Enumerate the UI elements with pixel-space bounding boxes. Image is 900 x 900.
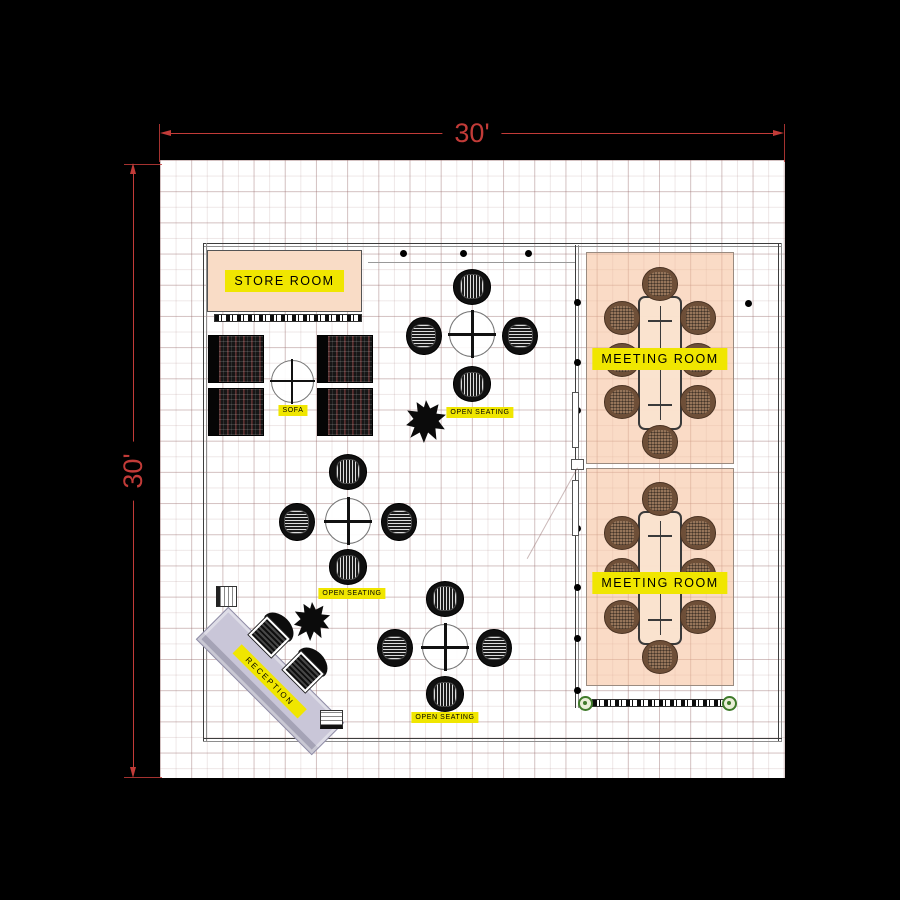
chair-icon	[329, 549, 367, 585]
chair-icon	[453, 366, 491, 402]
credenza-shelf	[592, 699, 728, 707]
sofa-label: SOFA	[278, 405, 307, 416]
plant-icon	[405, 398, 447, 444]
chair-icon	[329, 454, 367, 490]
sliding-door	[572, 392, 579, 448]
column-dot	[574, 299, 581, 306]
round-table-icon	[325, 498, 371, 544]
sliding-door	[572, 480, 579, 536]
meeting-room-label: MEETING ROOM	[592, 572, 727, 594]
chair-icon	[604, 516, 640, 550]
column-dot	[574, 687, 581, 694]
table-detail	[648, 404, 672, 406]
coffee-table-icon	[271, 360, 314, 403]
chair-icon	[642, 482, 678, 516]
chair-icon	[279, 503, 315, 541]
column-dot	[574, 584, 581, 591]
store-room: STORE ROOM	[207, 250, 362, 312]
chair-icon	[476, 629, 512, 667]
column-dot	[460, 250, 467, 257]
chair-icon	[642, 425, 678, 459]
extension-line	[124, 777, 162, 778]
table-detail	[648, 535, 672, 537]
chair-icon	[642, 640, 678, 674]
sofa-icon	[209, 336, 263, 382]
table-detail	[648, 619, 672, 621]
round-table-icon	[422, 624, 468, 670]
glass-partition-line	[368, 262, 575, 263]
printer-icon	[320, 710, 343, 729]
chair-icon	[426, 676, 464, 712]
chair-icon	[453, 269, 491, 305]
arrow-left-icon	[160, 130, 171, 136]
caster-wheel-icon	[722, 696, 737, 711]
dimension-left: 30'	[121, 163, 147, 778]
extension-line	[124, 164, 162, 165]
table-detail	[648, 320, 672, 322]
chair-icon	[642, 267, 678, 301]
open-seating-label: OPEN SEATING	[446, 407, 513, 418]
column-dot	[525, 250, 532, 257]
chair-icon	[406, 317, 442, 355]
round-table-icon	[449, 311, 495, 357]
wall-left	[203, 243, 207, 741]
extension-line	[159, 124, 160, 162]
chair-icon	[377, 629, 413, 667]
chair-icon	[604, 600, 640, 634]
chair-icon	[680, 516, 716, 550]
caster-wheel-icon	[578, 696, 593, 711]
chair-icon	[381, 503, 417, 541]
chair-icon	[502, 317, 538, 355]
chair-icon	[426, 581, 464, 617]
column-dot	[400, 250, 407, 257]
chair-icon	[680, 385, 716, 419]
open-seating-label: OPEN SEATING	[411, 712, 478, 723]
dimension-top-value: 30'	[442, 119, 501, 147]
floor-plan-screenshot: { "scene": { "type": "office floor plan"…	[0, 0, 900, 900]
chair-icon	[680, 301, 716, 335]
chair-icon	[680, 600, 716, 634]
arrow-right-icon	[773, 130, 784, 136]
sofa-icon	[209, 389, 263, 435]
plant-icon	[293, 600, 331, 642]
wall-bottom	[203, 738, 782, 742]
column-dot	[574, 359, 581, 366]
column-dot	[574, 635, 581, 642]
chair-icon	[604, 385, 640, 419]
store-room-shelf	[214, 314, 362, 322]
column-dot	[745, 300, 752, 307]
wall-top	[203, 243, 782, 247]
extension-line	[784, 124, 785, 162]
meeting-room-label: MEETING ROOM	[592, 348, 727, 370]
sofa-icon	[318, 336, 372, 382]
store-room-label: STORE ROOM	[225, 270, 343, 292]
dimension-top: 30'	[160, 121, 784, 147]
chair-icon	[604, 301, 640, 335]
dimension-left-value: 30'	[119, 441, 147, 500]
cabinet-icon	[216, 586, 237, 607]
wall-right	[778, 243, 782, 741]
open-seating-label: OPEN SEATING	[318, 588, 385, 599]
sofa-icon	[318, 389, 372, 435]
